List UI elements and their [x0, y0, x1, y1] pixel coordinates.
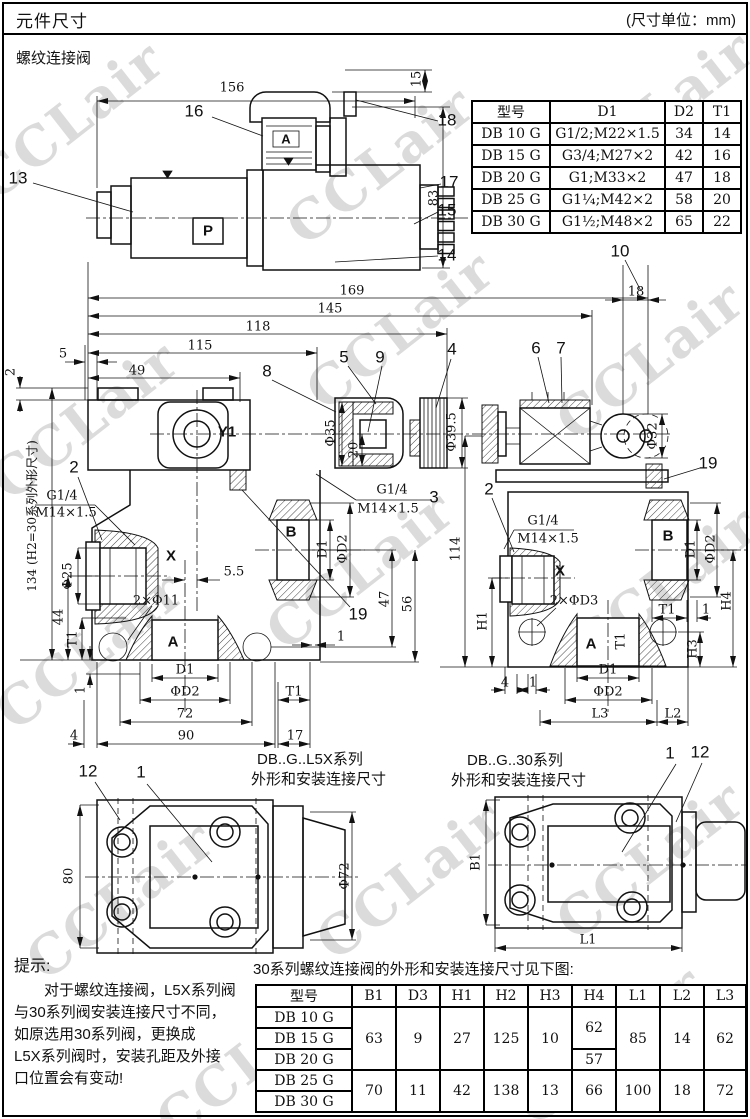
t2-cell: 14 [660, 1007, 704, 1070]
dim-114: 114 [450, 537, 463, 562]
dim-t1-b-right: T1 [659, 604, 676, 617]
dim-phid2-b-right: ΦD2 [705, 534, 718, 563]
t1-header: T1 [703, 101, 741, 123]
port-label-a-mid: A [168, 635, 179, 650]
dim-49: 49 [129, 365, 146, 378]
t2-header: H2 [484, 985, 528, 1007]
dim-l3: L3 [592, 708, 609, 721]
port-label-y1: Y1 [218, 425, 236, 440]
caption-l5x-line1: DB..G..L5X系列 [257, 748, 363, 769]
dim-72: 72 [177, 708, 194, 721]
thread-size-table: 型号 D1 D2 T1 DB 10 G G1/2;M22×1.5 34 14 D… [471, 100, 742, 234]
dim-44: 44 [53, 609, 66, 626]
dim-d1-b-right: D1 [685, 540, 698, 559]
unit-note: (尺寸单位：mm) [626, 9, 736, 30]
t2-cell: 72 [704, 1070, 746, 1112]
t1-cell: 58 [665, 189, 703, 211]
t1-cell: DB 15 G [472, 145, 550, 167]
note-line: 与30系列阀安装连接尺寸不同， [14, 1002, 260, 1024]
dim-145: 145 [318, 303, 343, 316]
t2-cell: 85 [616, 1007, 660, 1070]
thread-m14-mid: M14×1.5 [357, 503, 418, 516]
callout-14: 14 [438, 247, 457, 264]
dim-phid2-a: ΦD2 [170, 686, 199, 699]
t1-cell: 18 [703, 167, 741, 189]
thread-g14-mid: G1/4 [376, 484, 407, 497]
t2-cell: 63 [352, 1007, 396, 1070]
t2-header: L2 [660, 985, 704, 1007]
t2-header: 型号 [256, 985, 352, 1007]
t2-model: DB 25 G [256, 1070, 352, 1091]
dim-phi72: Φ72 [339, 862, 352, 889]
connector-label-a: A [281, 133, 290, 146]
dim-80: 80 [63, 868, 76, 885]
t2-cell: 13 [528, 1070, 572, 1112]
header-divider [2, 33, 748, 35]
t1-cell: 22 [703, 211, 741, 233]
dim-169: 169 [340, 285, 365, 298]
dim-90: 90 [178, 730, 195, 743]
t2-cell: 10 [528, 1007, 572, 1070]
callout-9: 9 [375, 349, 384, 366]
dim-134-note: 134 (H2=30系列外形尺寸) [26, 440, 38, 592]
note-line: 对于螺纹连接阀，L5X系列阀 [14, 980, 260, 1002]
dim-phid2-b: ΦD2 [337, 534, 350, 563]
t1-cell: 34 [665, 123, 703, 145]
mounting-dimension-table: 型号 B1 D3 H1 H2 H3 H4 L1 L2 L3 DB 10 G 63… [255, 984, 747, 1113]
caption-30-line1: DB..G..30系列 [467, 749, 563, 770]
t1-cell: G1¼;M42×2 [550, 189, 665, 211]
t2-header: B1 [352, 985, 396, 1007]
note-line: 口位置会有变动! [14, 1068, 260, 1090]
caption-l5x-line2: 外形和安装连接尺寸 [251, 768, 386, 789]
dim-4-right: 4 [501, 677, 509, 690]
dim-b1: B1 [470, 853, 483, 871]
t1-cell: 47 [665, 167, 703, 189]
t1-cell: 42 [665, 145, 703, 167]
t2-model: DB 30 G [256, 1091, 352, 1112]
dim-118: 118 [246, 321, 271, 334]
t1-cell: DB 25 G [472, 189, 550, 211]
dim-4-mid: 4 [70, 730, 78, 743]
t2-cell: 18 [660, 1070, 704, 1112]
callout-1-br: 1 [665, 745, 674, 762]
callout-3: 3 [429, 489, 438, 506]
t1-cell: 14 [703, 123, 741, 145]
note-line: 如原选用30系列阀，更换成 [14, 1024, 260, 1046]
t2-header: H1 [440, 985, 484, 1007]
t2-header: L1 [616, 985, 660, 1007]
t1-cell: G1;M33×2 [550, 167, 665, 189]
dim-phi25: Φ25 [62, 562, 75, 589]
dim-l1: L1 [580, 934, 597, 947]
dim-2xphi11: 2×Φ11 [133, 595, 179, 608]
t2-cell: 125 [484, 1007, 528, 1070]
t2-cell: 62 [704, 1007, 746, 1070]
thread-m14-right: M14×1.5 [517, 533, 578, 546]
t2-cell: 66 [572, 1070, 616, 1112]
callout-5: 5 [339, 349, 348, 366]
t2-model: DB 10 G [256, 1007, 352, 1028]
t2-cell: 27 [440, 1007, 484, 1070]
t1-header: 型号 [472, 101, 550, 123]
dim-1-b: 1 [337, 631, 345, 644]
dim-47: 47 [379, 591, 392, 608]
t1-cell: 65 [665, 211, 703, 233]
t2-cell: 42 [440, 1070, 484, 1112]
callout-17: 17 [440, 174, 459, 191]
dim-5-5: 5.5 [224, 566, 245, 579]
t2-header: D3 [396, 985, 440, 1007]
dim-115: 115 [188, 340, 213, 353]
t1-cell: G3/4;M27×2 [550, 145, 665, 167]
dim-t1-inside-a: T1 [615, 633, 628, 650]
t1-cell: G1½;M48×2 [550, 211, 665, 233]
callout-1-bl: 1 [136, 764, 145, 781]
callout-13: 13 [9, 170, 28, 187]
dim-2: 2 [5, 368, 18, 376]
dim-phid2-a-right: ΦD2 [593, 686, 622, 699]
dim-t1-mid: T1 [286, 686, 303, 699]
callout-7: 7 [556, 340, 565, 357]
t2-cell: 11 [396, 1070, 440, 1112]
section-label: 螺纹连接阀 [16, 47, 91, 68]
t1-cell: DB 20 G [472, 167, 550, 189]
dim-d1-a: D1 [176, 664, 195, 677]
callout-19-right: 19 [699, 455, 718, 472]
callout-15: 15 [438, 202, 457, 219]
t2-cell: 138 [484, 1070, 528, 1112]
dim-156: 156 [220, 82, 245, 95]
port-label-x-right: X [555, 564, 565, 579]
dim-17: 17 [287, 730, 304, 743]
callout-4: 4 [447, 341, 456, 358]
thread-m14-left: M14×1.5 [35, 507, 96, 520]
t1-cell: G1/2;M22×1.5 [550, 123, 665, 145]
t2-cell: 62 [572, 1007, 616, 1049]
t2-cell: 100 [616, 1070, 660, 1112]
page-title: 元件尺寸 [16, 7, 88, 32]
dim-phi39-5: Φ39.5 [446, 412, 459, 452]
callout-19-left: 19 [349, 606, 368, 623]
callout-16: 16 [185, 103, 204, 120]
dim-18: 18 [628, 286, 645, 299]
dim-h3: H3 [687, 639, 700, 659]
callout-12-bl: 12 [79, 763, 98, 780]
port-label-b-right: B [663, 529, 674, 544]
note-block: 提示: 对于螺纹连接阀，L5X系列阀 与30系列阀安装连接尺寸不同， 如原选用3… [14, 956, 260, 1090]
caption-30-line2: 外形和安装连接尺寸 [451, 769, 586, 790]
callout-10: 10 [611, 243, 630, 260]
note-line: L5X系列阀时，安装孔距及外接 [14, 1046, 260, 1068]
port-label-a-right: A [586, 637, 597, 652]
dim-15-top: 15 [411, 71, 424, 88]
t1-header: D2 [665, 101, 703, 123]
t1-cell: 20 [703, 189, 741, 211]
dim-1-left: 1 [75, 686, 88, 694]
dim-d1-b: D1 [317, 540, 330, 559]
dim-20: 20 [348, 442, 361, 459]
t1-cell: 16 [703, 145, 741, 167]
note-title: 提示: [14, 956, 260, 978]
table2-title: 30系列螺纹连接阀的外形和安装连接尺寸见下图: [253, 958, 574, 979]
dim-l2: L2 [665, 708, 682, 721]
dim-2xphid3: 2×ΦD3 [550, 595, 599, 608]
port-label-b-mid: B [286, 525, 297, 540]
dim-phi32: Φ32 [647, 422, 660, 449]
callout-2-right: 2 [484, 481, 493, 498]
dim-5: 5 [59, 348, 67, 361]
callout-6: 6 [531, 340, 540, 357]
dim-t1-left: T1 [67, 631, 80, 648]
dim-1-right: 1 [529, 677, 537, 690]
t2-cell: 70 [352, 1070, 396, 1112]
t2-cell: 9 [396, 1007, 440, 1070]
thread-g14-left: G1/4 [46, 490, 77, 503]
t2-cell: 57 [572, 1049, 616, 1070]
dim-h4: H4 [721, 591, 734, 611]
callout-18: 18 [438, 112, 457, 129]
dim-phi35: Φ35 [325, 419, 338, 446]
port-label-p: P [203, 224, 213, 239]
dim-h1: H1 [477, 611, 490, 631]
t2-header: L3 [704, 985, 746, 1007]
callout-8: 8 [262, 363, 271, 380]
t1-header: D1 [550, 101, 665, 123]
t2-header: H3 [528, 985, 572, 1007]
catalog-page: CCLair CCLair CCLair CCLair CCLair CCLai… [0, 0, 750, 1119]
t1-cell: DB 10 G [472, 123, 550, 145]
t2-model: DB 20 G [256, 1049, 352, 1070]
t1-cell: DB 30 G [472, 211, 550, 233]
dim-1-b-right: 1 [702, 604, 710, 617]
callout-12-br: 12 [691, 744, 710, 761]
thread-g14-right: G1/4 [527, 515, 558, 528]
callout-2-left: 2 [69, 459, 78, 476]
port-label-x: X [166, 549, 176, 564]
dim-56: 56 [402, 596, 415, 613]
t2-model: DB 15 G [256, 1028, 352, 1049]
dim-d1-a-right: D1 [599, 664, 618, 677]
t2-header: H4 [572, 985, 616, 1007]
